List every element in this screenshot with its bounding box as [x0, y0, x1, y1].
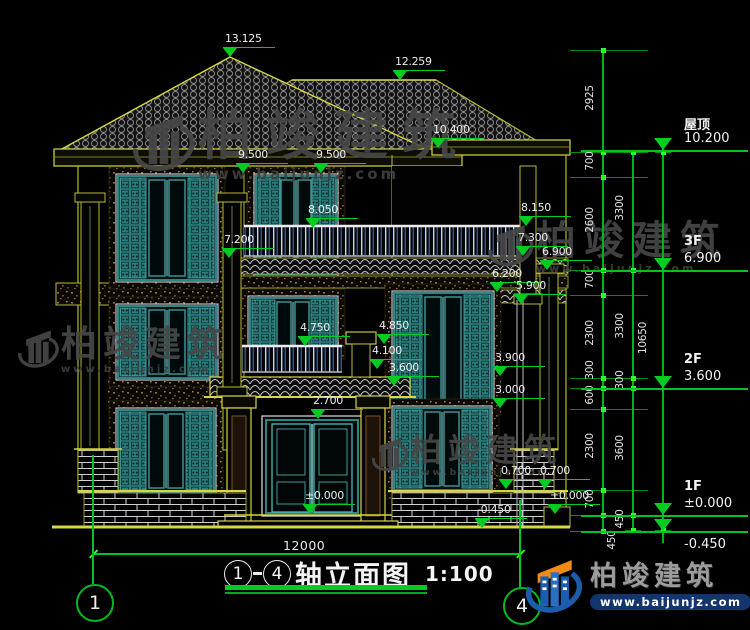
brand-url: www.baijunjz.com	[590, 594, 750, 610]
building-elevation	[0, 0, 750, 630]
title-underline-thin	[225, 592, 427, 594]
axis-bubble-1: 1	[76, 584, 114, 622]
title-underline-thick	[225, 585, 427, 590]
entrance-door	[262, 416, 362, 516]
brand-logo-icon	[524, 555, 584, 617]
title-axis-bubble-end: 4	[263, 560, 291, 588]
axis-bubble-1-label: 1	[89, 592, 101, 614]
balcony-pier-2f	[346, 332, 376, 377]
title-scale: 1:100	[425, 562, 494, 586]
porch-column-right	[356, 396, 390, 527]
eave-cornice-left	[54, 149, 462, 166]
window-1f-left	[109, 401, 223, 501]
title-axis-start: 1	[233, 564, 244, 584]
title-axis-end: 4	[272, 564, 283, 584]
brand-logo: 柏竣建筑 www.baijunjz.com	[524, 555, 750, 617]
window-1f-right	[385, 399, 499, 499]
pilaster-left-outer	[75, 193, 105, 450]
window-2f-left	[109, 297, 225, 387]
eave-cornice-right	[432, 140, 570, 155]
overall-width-label: 12000	[283, 538, 325, 553]
loggia-opening	[392, 166, 520, 230]
title-dash	[253, 572, 262, 575]
axis-line-4	[519, 500, 521, 588]
window-3f-left	[109, 167, 225, 289]
pilaster-left-inner-midcap	[217, 387, 247, 396]
axis-line-1	[92, 455, 94, 584]
title-axis-bubble-start: 1	[224, 560, 252, 588]
balcony-rail-2f	[242, 346, 342, 372]
balcony-rail-3f	[244, 226, 524, 256]
cad-elevation-drawing: 柏竣建筑 www.baijunjz.com 柏竣建筑 www.baijunjz.…	[0, 0, 750, 630]
brand-name: 柏竣建筑	[590, 562, 750, 592]
